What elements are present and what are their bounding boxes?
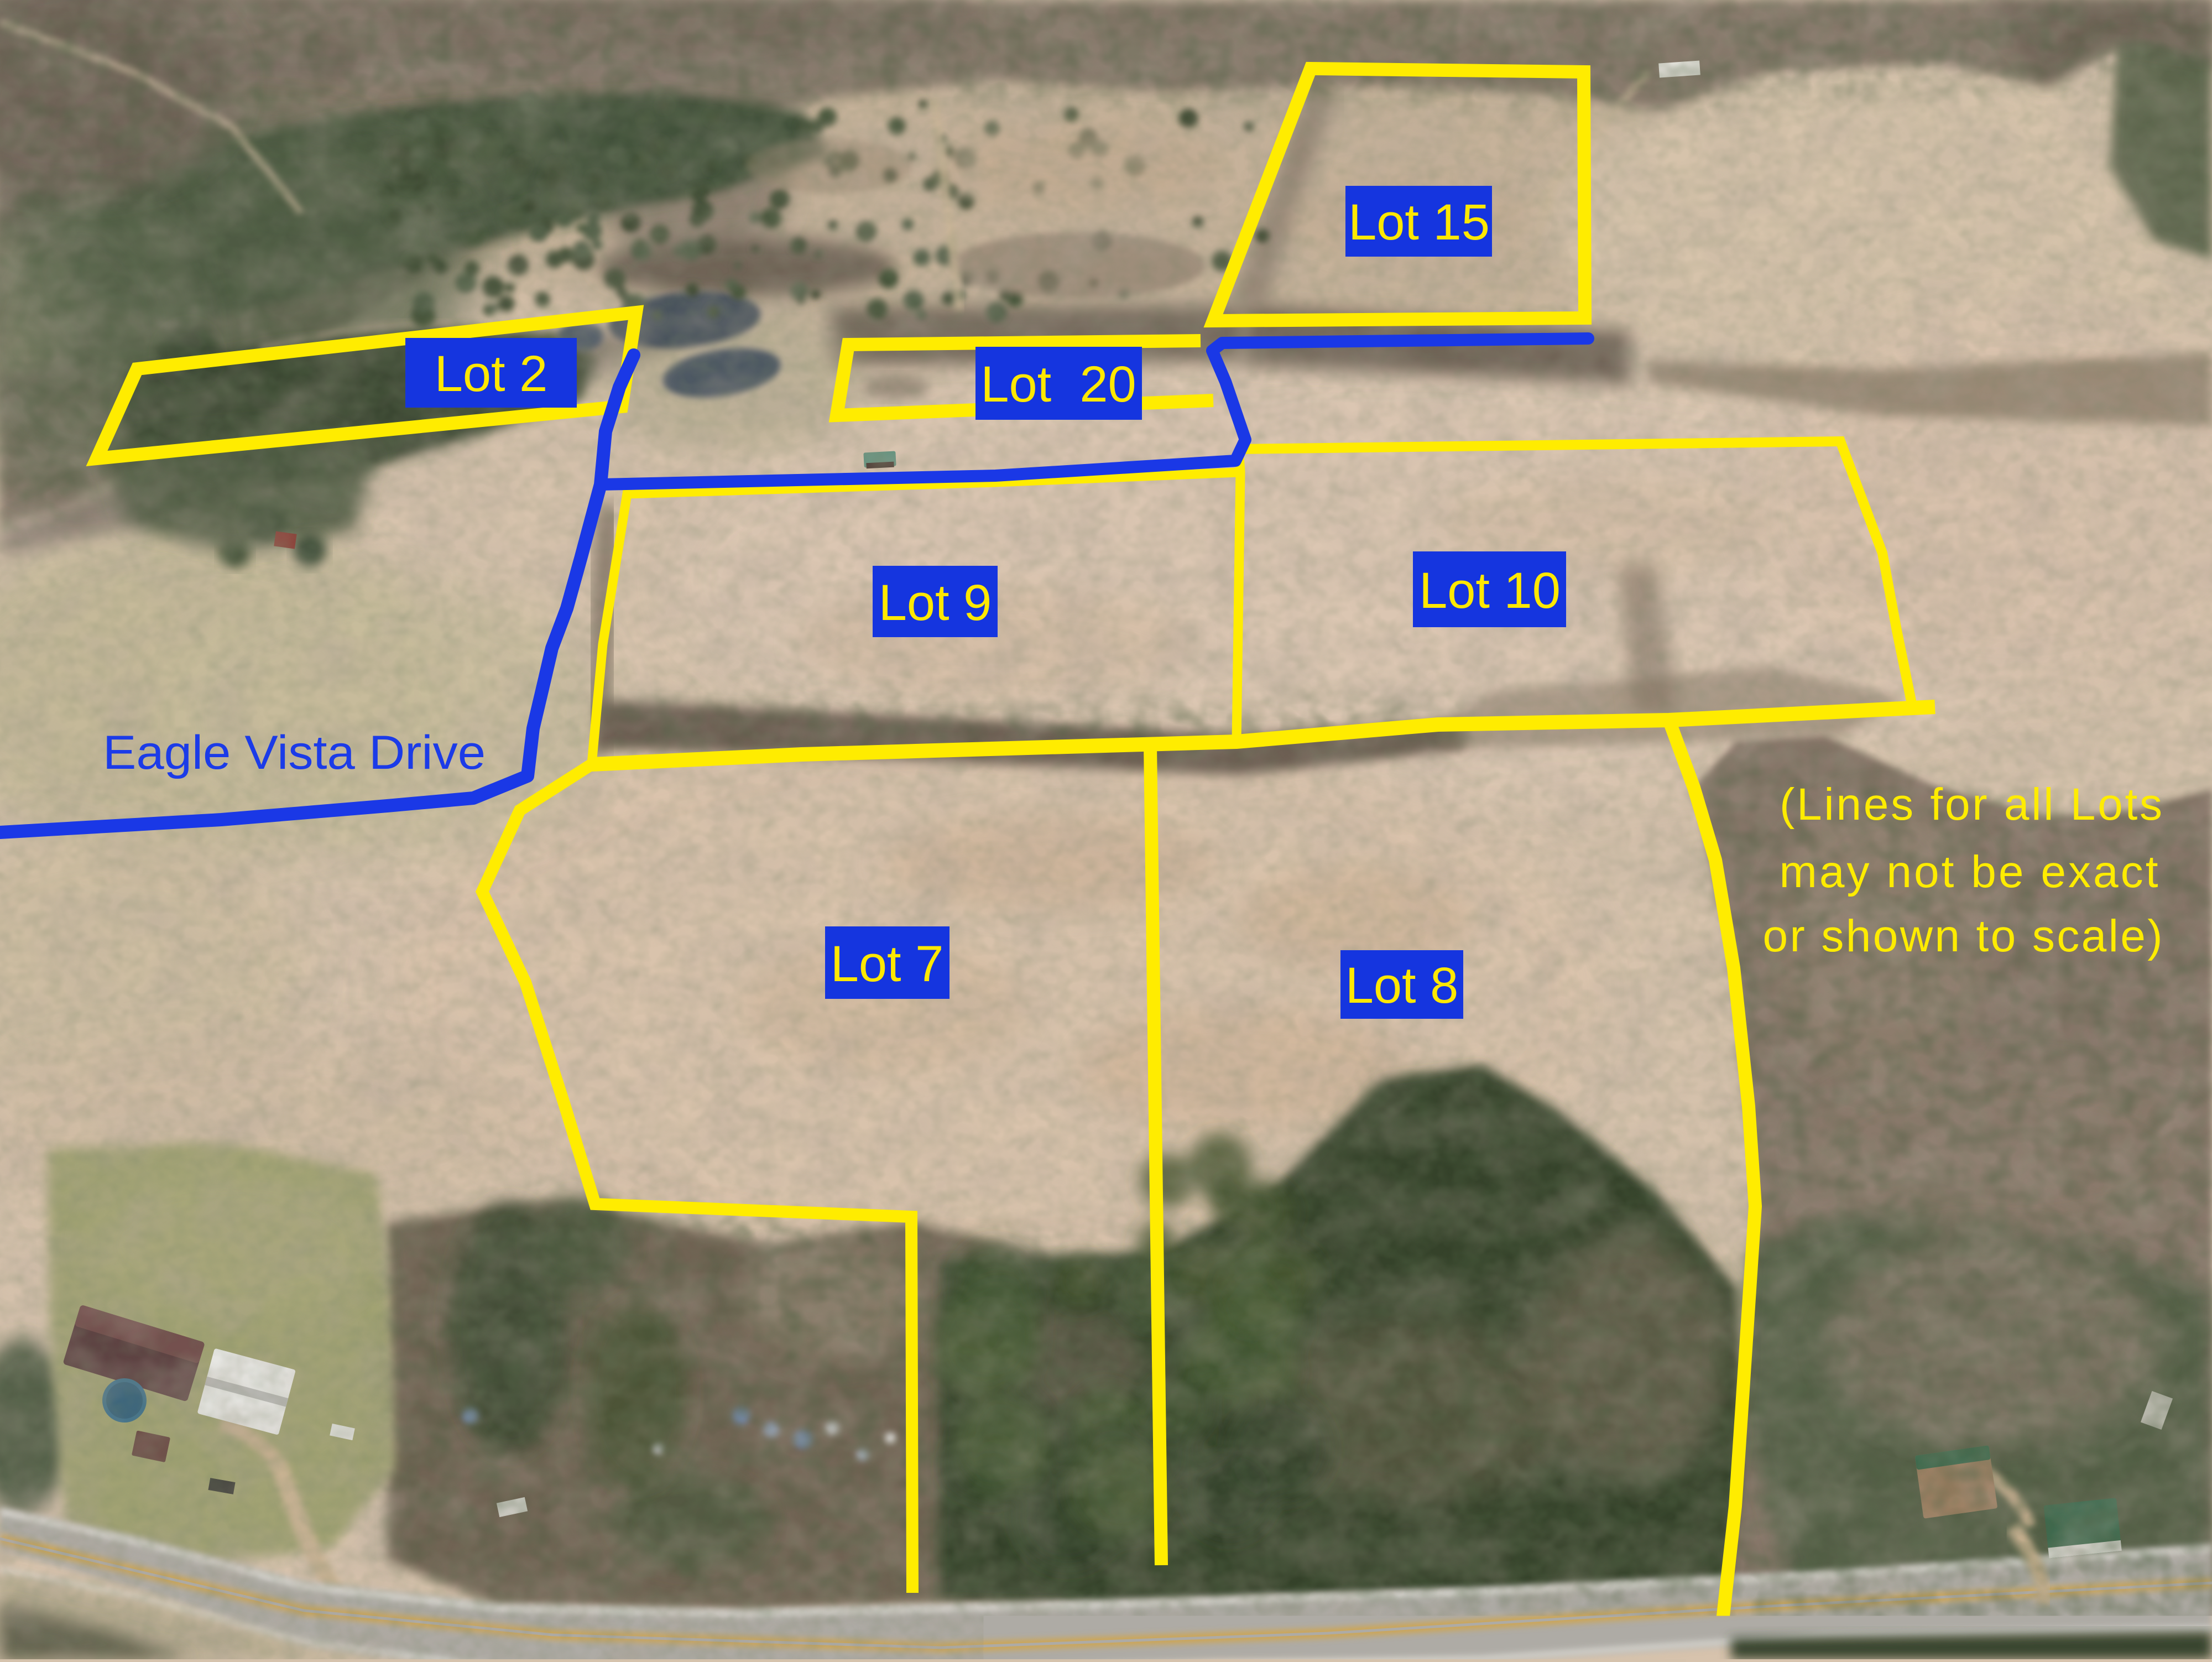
svg-text:or shown to scale): or shown to scale)	[1763, 911, 2163, 961]
svg-text:Lot 9: Lot 9	[879, 575, 992, 631]
svg-text:Lot 15: Lot 15	[1348, 194, 1490, 251]
svg-text:Lot 8: Lot 8	[1345, 957, 1459, 1014]
svg-text:Lot 20: Lot 20	[980, 356, 1136, 413]
svg-text:Lot 2: Lot 2	[435, 346, 548, 402]
svg-text:Lot 10: Lot 10	[1419, 562, 1561, 619]
svg-text:may not be exact: may not be exact	[1780, 847, 2158, 897]
svg-text:Eagle Vista Drive: Eagle Vista Drive	[103, 726, 486, 779]
svg-text:Lot 7: Lot 7	[831, 936, 944, 992]
